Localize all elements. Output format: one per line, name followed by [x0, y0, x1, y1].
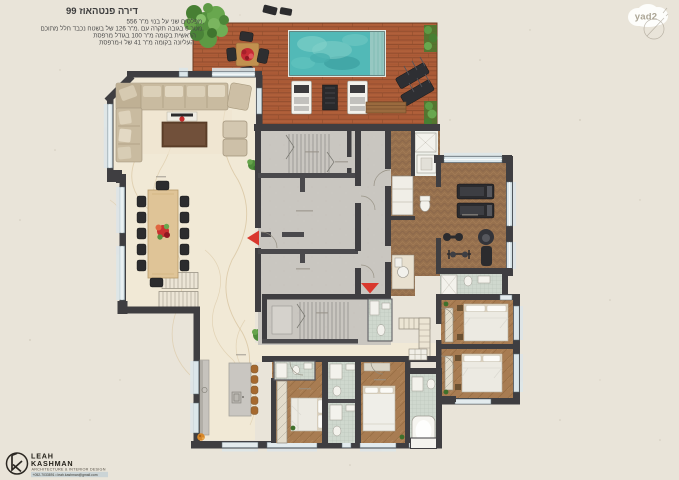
svg-text:ו-מרפסת‎ של‎ 41 מ"ר‎ בקומה‎ הע: ו-מרפסת‎ של‎ 41 מ"ר‎ בקומה‎ העליונה.‎: [99, 39, 196, 47]
svg-text:99 פנטהאוז‎ דירה‎: 99 פנטהאוז‎ דירה‎: [66, 6, 138, 17]
svg-text:556 מ"ר‎ בנוי‎ על‎ שני‎ מפלסים: 556 מ"ר‎ בנוי‎ על‎ שני‎ מפלסים,‎: [127, 18, 205, 26]
svg-text:+052-7033891 • leah.kashman@gm: +052-7033891 • leah.kashman@gmail.com: [33, 473, 98, 477]
svg-text:מתוכם‎ חלל‎ נכבד‎ בשטח‎ של‎ 12: מתוכם‎ חלל‎ נכבד‎ בשטח‎ של‎ 126 מ"ר.‎ עם…: [40, 25, 204, 33]
svg-text:מרפסת‎ בגודל‎ 100 מ"ר‎ בקומה‎: מרפסת‎ בגודל‎ 100 מ"ר‎ בקומה‎ הראשית‎: [93, 32, 196, 40]
svg-text:ARCHITECTURE & INTERIOR DESIGN: ARCHITECTURE & INTERIOR DESIGN: [32, 467, 106, 471]
svg-text:yad2: yad2: [635, 12, 657, 23]
